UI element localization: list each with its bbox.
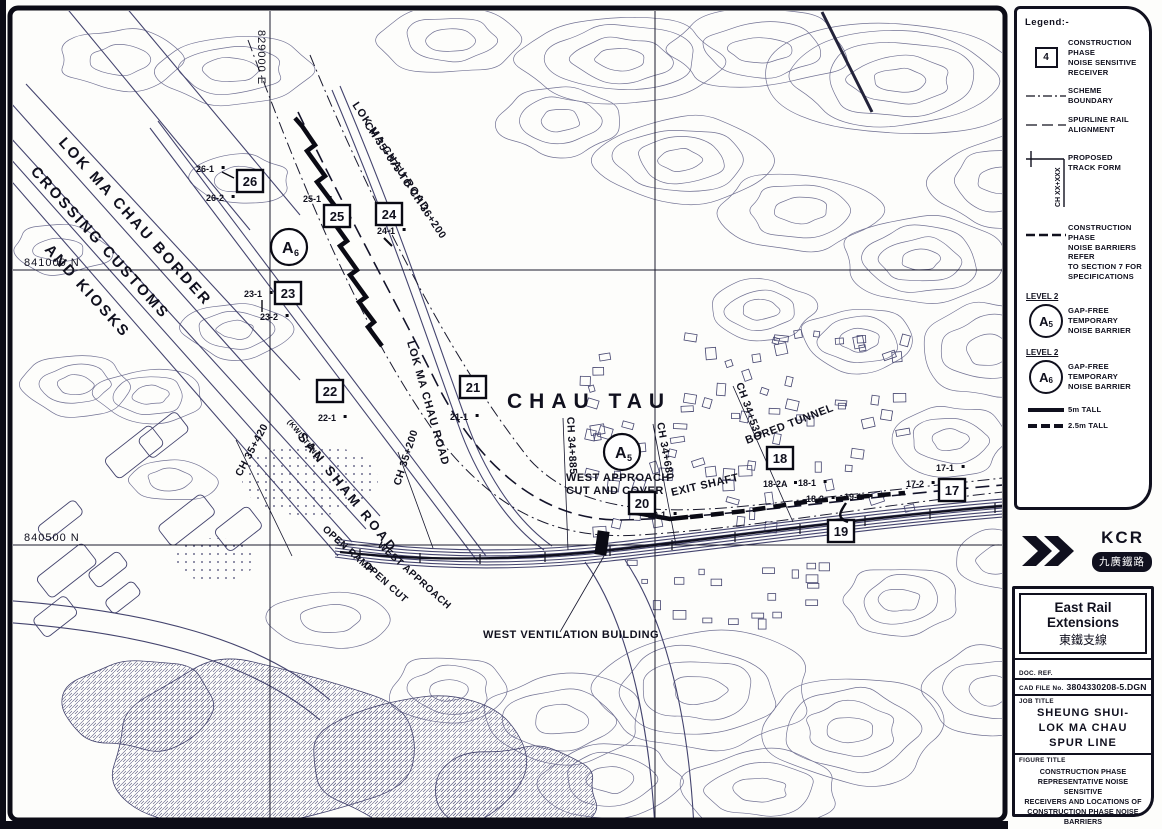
kcr-chinese-badge: 九廣鐵路 [1092,552,1152,572]
receiver-point-dot-17-1 [962,465,965,468]
contour-ring [902,249,940,270]
pond [137,411,190,460]
contour-ring [789,30,1000,127]
contour-ring [846,55,948,104]
building [807,563,816,569]
receiver-box-24: 24 [376,203,402,225]
contour-ring [39,364,111,403]
marker-letter-a5: A [615,445,627,462]
receiver-point-label-25-1: 25-1 [303,194,321,204]
village-blob [435,746,596,829]
grid-label-grid-841000n: 841000 N [24,257,80,269]
contour-ring [878,237,962,281]
building [673,610,686,619]
building [765,492,774,505]
contour-ring [90,44,151,75]
contour-ring [266,592,390,648]
legend-item-scheme-boundary-label: SCHEME BOUNDARY [1068,86,1144,106]
contour-ring [827,718,872,743]
contour-ring [300,604,360,632]
building [683,393,696,404]
building [871,395,879,405]
fish-ponds [32,411,264,639]
contour-ring [658,148,703,171]
cad-file-row: CAD FILE No. 3804330208-5.DGN [1015,678,1151,694]
contour-ring [717,174,885,252]
building [702,398,712,409]
marker-sub-a6: 6 [294,248,299,258]
contour-ring [62,29,185,92]
building [599,353,611,361]
legend-item-a6: A6 GAP-FREE TEMPORARY NOISE BARRIER [1024,360,1144,394]
legend-item-barriers-note: CONSTRUCTION PHASE NOISE BARRIERS REFER … [1024,223,1144,282]
village-hatch [62,659,597,829]
building [699,569,704,574]
building [580,376,590,385]
building [752,354,761,363]
contour-ring [724,290,794,331]
receiver-point-dot-26-1 [222,166,225,169]
contour-ring [844,215,1004,303]
receiver-point-label-19-1: 19-1 [844,492,862,502]
barrier-5m-zigzag [295,118,382,346]
legend-item-receiver-label: CONSTRUCTION PHASE NOISE SENSITIVE RECEI… [1068,38,1144,77]
contour-ring [932,429,969,451]
legend-item-5m: 5m TALL [1024,405,1144,415]
grid-label-grid-840500n: 840500 N [24,532,80,544]
receiver-point-label-21-1: 21-1 [450,412,468,422]
contour-ring [569,37,673,84]
project-name-box: East Rail Extensions 東鐵支線 [1019,593,1147,654]
job-title: SHEUNG SHUI- LOK MA CHAU SPUR LINE [1019,706,1147,751]
contour-ring [513,17,725,104]
contour-ring [843,570,956,637]
contour-ring [862,225,977,293]
cad-file-label: CAD FILE No. [1019,685,1064,692]
legend-item-a5: A5 GAP-FREE TEMPORARY NOISE BARRIER [1024,304,1144,338]
contour-ring [874,68,926,92]
legend-item-spurline: SPURLINE RAIL ALIGNMENT [1024,115,1144,135]
building [739,465,753,476]
building [593,367,604,375]
legend-item-a6-label: GAP-FREE TEMPORARY NOISE BARRIER [1068,362,1144,392]
pond [104,580,142,615]
receiver-box-number: 4 [1043,52,1049,63]
contour-ring [57,375,94,395]
receiver-box-number-26: 26 [243,174,257,189]
contour-ring [536,704,589,734]
barrier-5m-line-icon [1025,406,1067,414]
cad-file-value: 3804330208-5.DGN [1067,682,1147,692]
contour-ring [586,767,634,794]
contour-ring [113,377,182,415]
building [716,383,725,396]
receiver-point-label-23-1: 23-1 [244,289,262,299]
receiver-box-icon: 4 [1035,47,1058,68]
place-label-open-ramp: OPEN RAMP [320,524,376,576]
building [893,393,906,402]
receiver-point-dot-22-1 [344,415,347,418]
legend-item-2-5m: 2.5m TALL [1024,421,1144,431]
contour-ring [766,23,1038,134]
pond [32,595,79,639]
legend-level2-a6-heading: LEVEL 2 [1026,348,1144,357]
village-blob [62,661,214,752]
contour-ring [148,468,192,491]
job-title-row: JOB TITLE SHEUNG SHUI- LOK MA CHAU SPUR … [1015,694,1151,753]
heavy-diagonal-mark [822,12,872,112]
contour-ring [774,197,826,224]
contour-ring [519,97,602,144]
noise-barrier-marker-a6: A6 [271,229,307,265]
legend-item-track-form-label: PROPOSED TRACK FORM [1068,153,1121,173]
contour-ring [786,687,922,772]
contour-ring [727,38,792,63]
receiver-point-label-18-1: 18-1 [798,478,816,488]
building [896,428,911,436]
building [675,578,684,585]
contour-ring [92,369,201,424]
building [851,448,864,459]
doc-ref-label: DOC. REF. [1019,670,1053,677]
receiver-box-number-24: 24 [382,207,397,222]
receiver-box-number-23: 23 [281,286,295,301]
building [806,575,818,583]
legend-item-spurline-label: SPURLINE RAIL ALIGNMENT [1068,115,1144,135]
contour-ring [591,630,807,751]
receiver-point-dot-23-2 [286,314,289,317]
receiver-point-dot-26-2 [232,195,235,198]
building [880,409,892,420]
a6-sub: 6 [1048,376,1052,385]
noise-barrier-marker-a5: A5 [604,434,640,470]
building [692,458,705,468]
place-label-chau-tau: CHAU TAU [507,390,671,413]
building [773,612,782,618]
legend-panel: Legend:- 4 CONSTRUCTION PHASE NOISE SENS… [1014,6,1152,510]
receiver-box-number-25: 25 [330,209,344,224]
contour-ring [733,778,786,802]
receiver-box-number-18: 18 [773,451,787,466]
contour-ring [704,762,814,816]
receiver-box-26: 26 [237,170,263,192]
receiver-point-dot-17-2 [932,481,935,484]
receiver-point-label-18-2: 18-2 [806,494,824,504]
building [705,466,716,477]
building [819,563,829,571]
building [774,343,788,356]
legend-item-receiver: 4 CONSTRUCTION PHASE NOISE SENSITIVE REC… [1024,38,1144,77]
receiver-point-label-26-1: 26-1 [196,164,214,174]
contour-ring [132,385,169,404]
project-name: East Rail Extensions [1022,600,1144,630]
building [642,579,648,583]
building [763,568,775,574]
scheme-boundary-line-icon [1025,92,1067,100]
receiver-point-label-24-1: 24-1 [377,226,395,236]
receiver-box-18: 18 [767,447,793,469]
arrow-26-1 [222,172,234,178]
a5-barrier-icon: A5 [1029,304,1063,338]
kcr-brand: KCR 九廣鐵路 [1012,524,1154,582]
map-canvas: LOK MA CHAU BORDERCROSSING CUSTOMSAND KI… [0,0,1162,829]
scan-edge-left [0,0,6,829]
contour-ring [19,356,130,418]
contour-ring [878,589,920,611]
chainage-label-ch-34-885: CH 34+885 [564,417,579,475]
contour-ring [666,8,848,87]
kcr-wordmark: KCR [1101,528,1144,548]
contour-ring [202,57,259,81]
contour-ring [743,299,780,320]
building [815,462,821,472]
contour-ring [426,29,476,52]
track-form-icon: CH XX+XXX [1024,147,1068,209]
legend-level2-a5-heading: LEVEL 2 [1026,292,1144,301]
building [729,619,739,625]
contour-ring [376,5,522,72]
contour-ring [128,460,218,500]
receiver-box-number-19: 19 [834,524,848,539]
building [725,360,733,368]
contour-ring [643,662,751,720]
contour-ring [913,418,989,463]
map-art-group: LOK MA CHAU BORDERCROSSING CUSTOMSAND KI… [0,0,1070,829]
building [845,465,852,472]
project-name-chinese: 東鐵支線 [1022,631,1144,648]
contour-ring [807,700,894,756]
chainage-label-ch-34-530: CH 34+530 [733,381,764,440]
legend-item-2-5m-label: 2.5m TALL [1068,421,1108,431]
receiver-box-21: 21 [460,376,486,398]
pond [35,542,98,599]
contour-ring [541,109,579,132]
receiver-box-20: 20 [629,492,655,514]
building [705,347,716,360]
drawing-sheet: LOK MA CHAU BORDERCROSSING CUSTOMSAND KI… [0,0,1162,829]
track-form-chainage-label: CH XX+XXX [1055,167,1062,207]
receiver-point-label-18-2A: 18-2A [763,479,788,489]
chainage-label-ch-36-range: CH 35+675 TO CH 36+200 [362,120,449,241]
receiver-box-number-17: 17 [945,483,959,498]
building [861,417,875,429]
building [808,583,819,588]
building [806,600,818,606]
contour-ring [762,679,944,786]
receiver-point-dot-21-1 [476,414,479,417]
legend-item-5m-label: 5m TALL [1068,405,1101,415]
arrow-24-1 [384,238,392,246]
figure-title-row: FIGURE TITLE CONSTRUCTION PHASE REPRESEN… [1015,753,1151,829]
place-label-west-approach-cut-cover: WEST APPROACH [566,472,670,484]
noise-barrier-line-icon [1025,231,1067,239]
receiver-box-number-22: 22 [323,384,337,399]
building [622,421,634,430]
building [673,423,687,429]
barrier-2-5m-line-icon [1025,422,1067,430]
building [813,331,819,337]
receiver-point-dot-19-1 [870,494,873,497]
receiver-point-label-22-1: 22-1 [318,413,336,423]
contour-ring [864,574,937,624]
building [760,387,769,395]
building [752,613,764,618]
building [726,497,739,505]
kcr-logo-icon [1018,526,1088,576]
contour-ring [801,309,912,374]
contour-ring [830,42,974,116]
spurline-alignment-line-icon [1025,121,1067,129]
receiver-box-17: 17 [939,479,965,501]
contour-ring [595,48,644,71]
building [758,619,766,629]
contour-ring [639,136,725,183]
building [769,408,780,414]
building [785,399,799,411]
building [768,594,776,601]
map-labels: LOK MA CHAU BORDERCROSSING CUSTOMSAND KI… [24,30,954,641]
building [684,333,697,342]
marker-sub-a5: 5 [627,453,632,463]
receiver-box-number-20: 20 [635,496,649,511]
legend-item-barriers-note-label: CONSTRUCTION PHASE NOISE BARRIERS REFER … [1068,223,1144,282]
contour-ring [674,677,729,705]
doc-ref-row: DOC. REF. [1015,658,1151,678]
legend-title: Legend:- [1025,17,1144,28]
contour-ring [407,19,498,62]
building [785,376,793,387]
legend-item-track-form: CH XX+XXX PROPOSED TRACK FORM [1024,147,1144,209]
receiver-box-25: 25 [324,205,350,227]
a6-letter: A [1039,370,1048,385]
job-title-label: JOB TITLE [1019,698,1147,705]
title-block: East Rail Extensions 東鐵支線 DOC. REF. CAD … [1012,586,1154,817]
receiver-point-dot-23-1 [270,291,273,294]
grid-label-grid-829000e: 829000 E [255,30,267,85]
building [711,579,722,586]
contour-ring [750,185,851,238]
border-crossing-road [0,147,352,542]
receiver-point-label-17-1: 17-1 [936,463,954,473]
ventilation-leader-line [560,556,604,632]
a6-barrier-icon: A6 [1029,360,1063,394]
marker-letter-a6: A [282,240,294,257]
receiver-box-19: 19 [828,520,854,542]
receiver-point-dot-18-2A [794,481,797,484]
contour-ring [703,22,821,79]
border-crossing-road [0,168,338,556]
receiver-box-22: 22 [317,380,343,402]
receiver-point-label-26-2: 26-2 [206,193,224,203]
legend-item-scheme-boundary: SCHEME BOUNDARY [1024,86,1144,106]
building [742,369,752,381]
place-label-west-ventilation-building: WEST VENTILATION BUILDING [483,629,659,641]
receiver-point-dot-24-1 [403,228,406,231]
receiver-point-dot-18-1 [824,480,827,483]
receiver-point-dot-18-2 [832,496,835,499]
building [900,334,911,347]
a5-letter: A [1039,314,1048,329]
legend-item-a5-label: GAP-FREE TEMPORARY NOISE BARRIER [1068,306,1144,336]
figure-title-label: FIGURE TITLE [1019,757,1147,764]
receiver-box-23: 23 [275,282,301,304]
building [653,601,660,610]
receiver-point-dot-25-1 [329,196,332,199]
building [731,413,739,418]
receiver-box-number-21: 21 [466,380,480,395]
receiver-point-dot-20-1 [674,512,677,515]
contour-ring [712,278,817,340]
contour-ring [680,748,835,829]
building [670,436,685,443]
building [681,406,693,412]
figure-title: CONSTRUCTION PHASE REPRESENTATIVE NOISE … [1019,767,1147,827]
building [792,570,798,578]
place-label-exit-shaft: EXIT SHAFT [670,472,740,499]
building [703,618,712,623]
receiver-point-label-17-2: 17-2 [906,479,924,489]
a5-sub: 5 [1048,320,1052,329]
receiver-point-label-23-2: 23-2 [260,312,278,322]
